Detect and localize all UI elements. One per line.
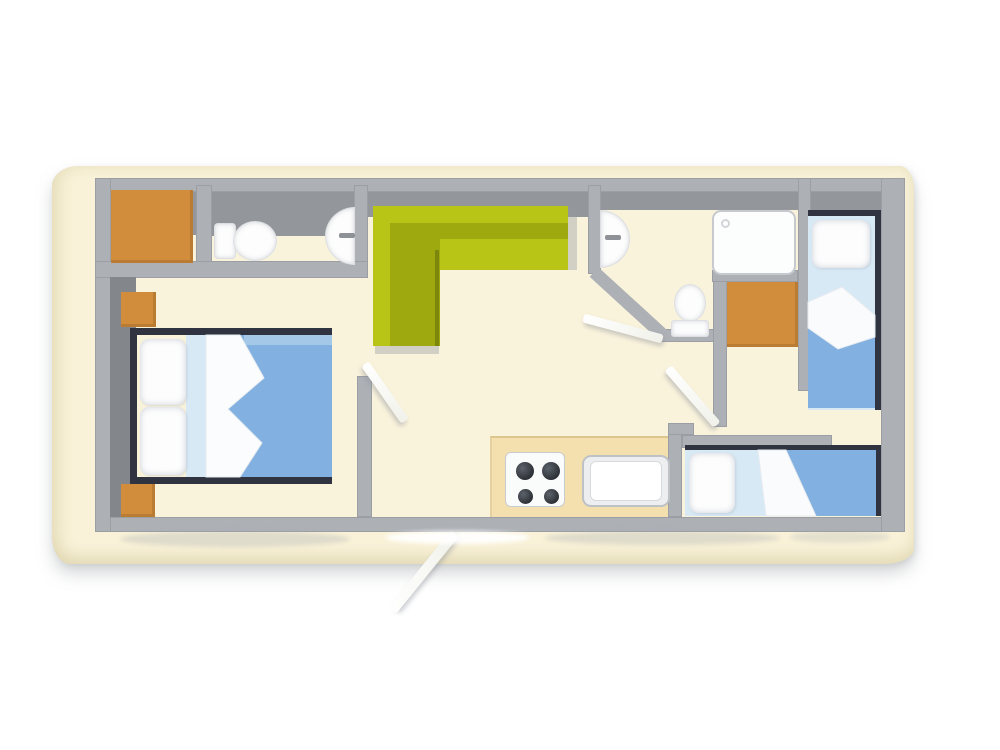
floor-plan-scene (0, 0, 1000, 750)
overlay-shapes (0, 0, 1000, 750)
exterior-shadow-left (120, 531, 350, 547)
exterior-shadow-far-right (790, 531, 890, 543)
entry-threshold (385, 531, 530, 544)
double-bed-duvet-edge (244, 335, 332, 345)
exterior-shadow-right (545, 531, 780, 545)
